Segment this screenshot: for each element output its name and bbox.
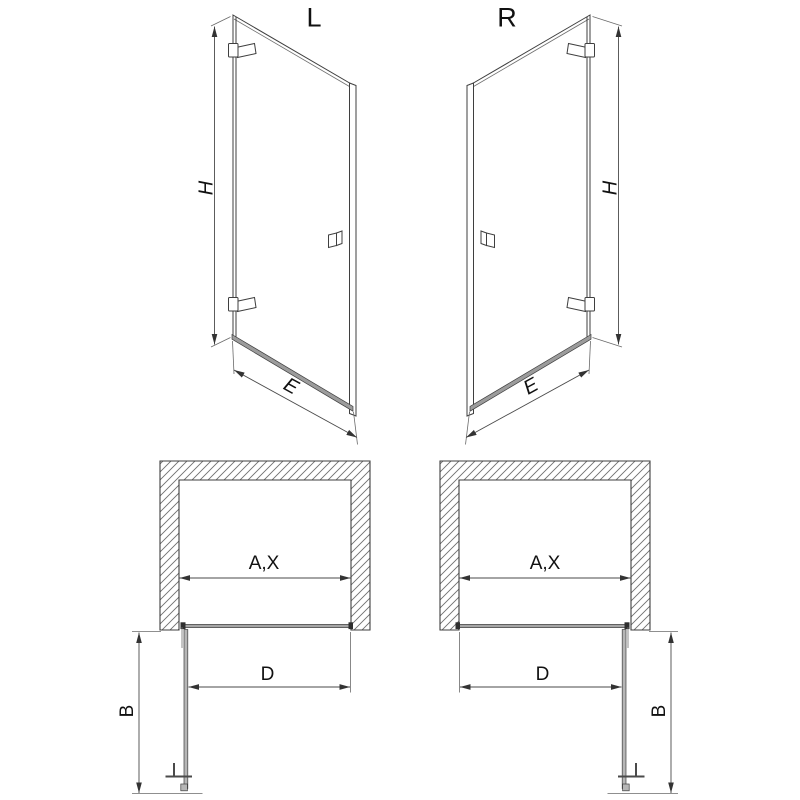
door-front-view-right: R H E (466, 3, 623, 445)
door-closed-position (458, 624, 627, 627)
hinge-bracket (181, 622, 186, 629)
door-knob-side (337, 231, 343, 246)
door-foot (181, 784, 188, 791)
door-closed-position (184, 624, 353, 627)
extension-line (354, 412, 358, 445)
hinge-top-clamp (585, 44, 595, 58)
extension-line (211, 17, 231, 27)
door-open-position (622, 630, 626, 789)
dim-label-height: H (196, 180, 218, 195)
dim-label-opening: A,X (530, 553, 561, 574)
dim-label-passage: D (536, 664, 550, 685)
door-knob (487, 233, 495, 248)
wall-profile (350, 83, 357, 416)
door-front-view-left: L H E (196, 3, 358, 445)
door-foot (623, 784, 630, 791)
extension-line (589, 341, 591, 374)
dim-label-height: H (600, 180, 622, 195)
dim-label-opening: A,X (249, 553, 280, 574)
wall-bracket (349, 622, 354, 629)
dim-label-passage: D (261, 664, 275, 685)
hinge-bottom-clamp (229, 298, 239, 312)
alcove-walls (160, 461, 370, 630)
door-knob-side (481, 231, 487, 246)
hinge-bottom-clamp (585, 298, 595, 312)
extension-line (593, 17, 623, 27)
dim-label-width: E (520, 373, 543, 399)
hinge-bracket (625, 622, 630, 629)
plan-view-left: A,X D B (117, 461, 370, 794)
hinge-top-clamp (229, 44, 239, 58)
extension-line (466, 412, 470, 445)
dim-label-depth: B (117, 705, 138, 718)
alcove-walls (440, 461, 650, 630)
door-knob (329, 233, 337, 248)
door-open-position (184, 630, 188, 789)
dim-label-width: E (280, 374, 303, 400)
variant-label-left: L (306, 3, 321, 33)
wall-bracket (456, 622, 461, 629)
dim-label-depth: B (649, 705, 670, 718)
plan-view-right: A,X D B (440, 461, 678, 794)
shower-door-technical-diagram: L H E R H E A,X (0, 0, 800, 800)
wall-profile (467, 83, 474, 416)
extension-line (593, 338, 623, 348)
extension-line (211, 338, 231, 348)
variant-label-right: R (497, 3, 517, 33)
extension-line (233, 341, 235, 374)
